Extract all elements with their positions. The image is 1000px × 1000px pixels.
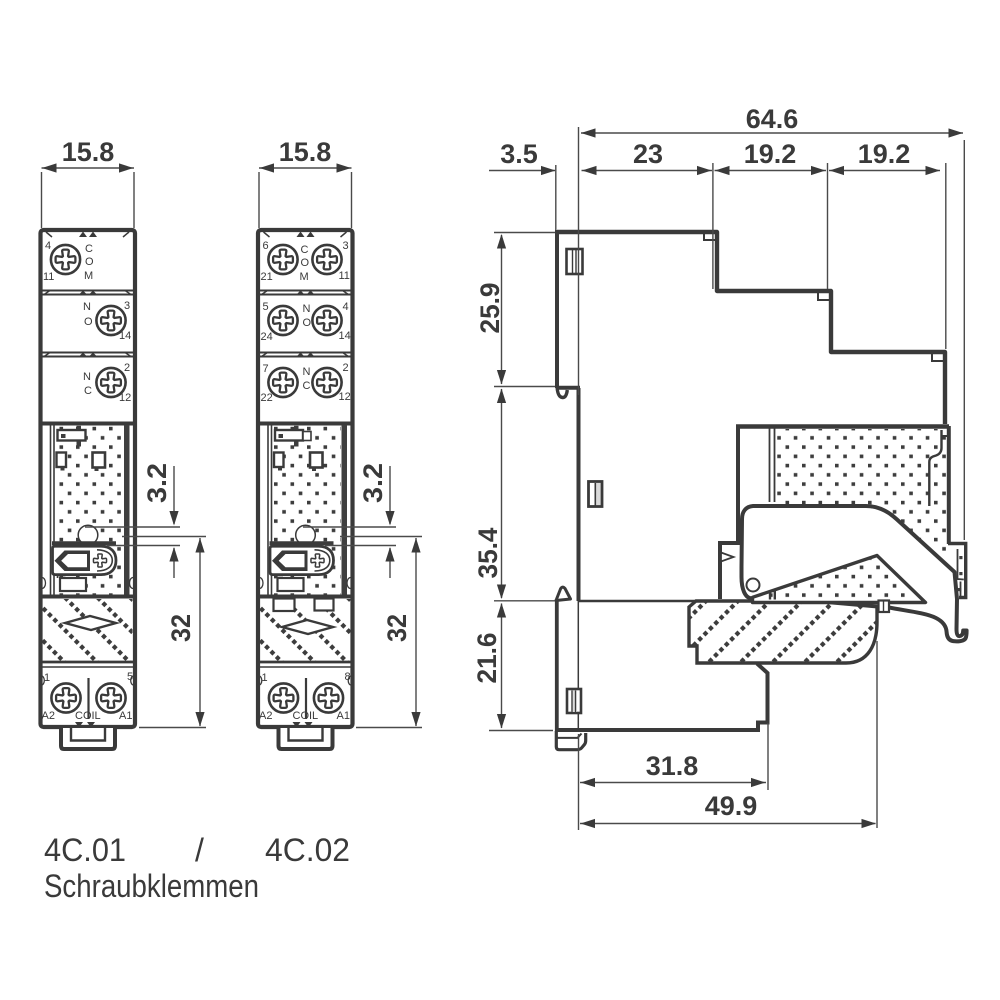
svg-text:3.5: 3.5	[500, 139, 538, 169]
svg-text:8: 8	[345, 671, 351, 683]
svg-text:4: 4	[45, 240, 51, 252]
svg-text:6: 6	[263, 240, 269, 252]
svg-text:32: 32	[166, 614, 196, 642]
svg-text:/: /	[195, 832, 204, 868]
svg-text:32: 32	[382, 614, 412, 642]
svg-text:M: M	[84, 270, 93, 282]
svg-text:4C.02: 4C.02	[265, 832, 350, 868]
svg-text:A2: A2	[42, 710, 55, 722]
svg-text:4: 4	[343, 301, 349, 313]
svg-text:C: C	[84, 385, 92, 397]
svg-text:A1: A1	[337, 710, 350, 722]
svg-text:A2: A2	[259, 710, 272, 722]
svg-text:N: N	[83, 301, 91, 313]
svg-text:1: 1	[44, 672, 50, 684]
svg-text:O: O	[303, 317, 312, 329]
svg-text:3: 3	[343, 240, 349, 252]
svg-text:12: 12	[339, 391, 351, 403]
svg-text:5: 5	[127, 671, 133, 683]
svg-text:N: N	[303, 366, 311, 378]
svg-text:O: O	[84, 316, 93, 328]
svg-text:23: 23	[633, 139, 663, 169]
svg-text:4C.01: 4C.01	[44, 832, 126, 868]
svg-text:O: O	[301, 257, 310, 269]
svg-text:3: 3	[124, 300, 130, 312]
svg-text:15.8: 15.8	[279, 137, 332, 167]
svg-text:19.2: 19.2	[858, 139, 911, 169]
svg-text:2: 2	[124, 362, 130, 374]
svg-text:49.9: 49.9	[705, 791, 758, 821]
svg-text:15.8: 15.8	[62, 137, 115, 167]
svg-text:31.8: 31.8	[646, 751, 699, 781]
svg-text:Schraubklemmen: Schraubklemmen	[44, 868, 259, 904]
svg-text:5: 5	[263, 301, 269, 313]
svg-text:2: 2	[343, 362, 349, 374]
svg-text:35.4: 35.4	[473, 528, 503, 579]
svg-text:12: 12	[119, 392, 131, 404]
svg-text:C: C	[301, 244, 309, 256]
svg-text:19.2: 19.2	[744, 139, 797, 169]
svg-text:24: 24	[261, 331, 273, 343]
svg-text:21: 21	[261, 271, 273, 283]
svg-text:7: 7	[263, 363, 269, 375]
svg-text:3.2: 3.2	[358, 463, 388, 503]
svg-text:N: N	[303, 303, 311, 315]
svg-text:14: 14	[339, 330, 351, 342]
svg-text:COIL: COIL	[293, 710, 319, 722]
svg-text:11: 11	[339, 270, 350, 282]
svg-text:M: M	[300, 271, 309, 283]
svg-text:N: N	[83, 371, 91, 383]
svg-text:11: 11	[43, 271, 54, 283]
svg-text:3.2: 3.2	[142, 463, 172, 503]
svg-text:C: C	[303, 380, 311, 392]
svg-text:21.6: 21.6	[472, 633, 502, 684]
svg-text:1: 1	[262, 672, 268, 684]
svg-text:14: 14	[119, 330, 131, 342]
svg-text:O: O	[85, 256, 94, 268]
svg-text:22: 22	[261, 392, 273, 404]
svg-text:COIL: COIL	[75, 710, 101, 722]
svg-text:64.6: 64.6	[746, 104, 799, 134]
svg-text:25.9: 25.9	[475, 283, 505, 334]
svg-text:A1: A1	[119, 710, 132, 722]
svg-text:C: C	[85, 243, 93, 255]
